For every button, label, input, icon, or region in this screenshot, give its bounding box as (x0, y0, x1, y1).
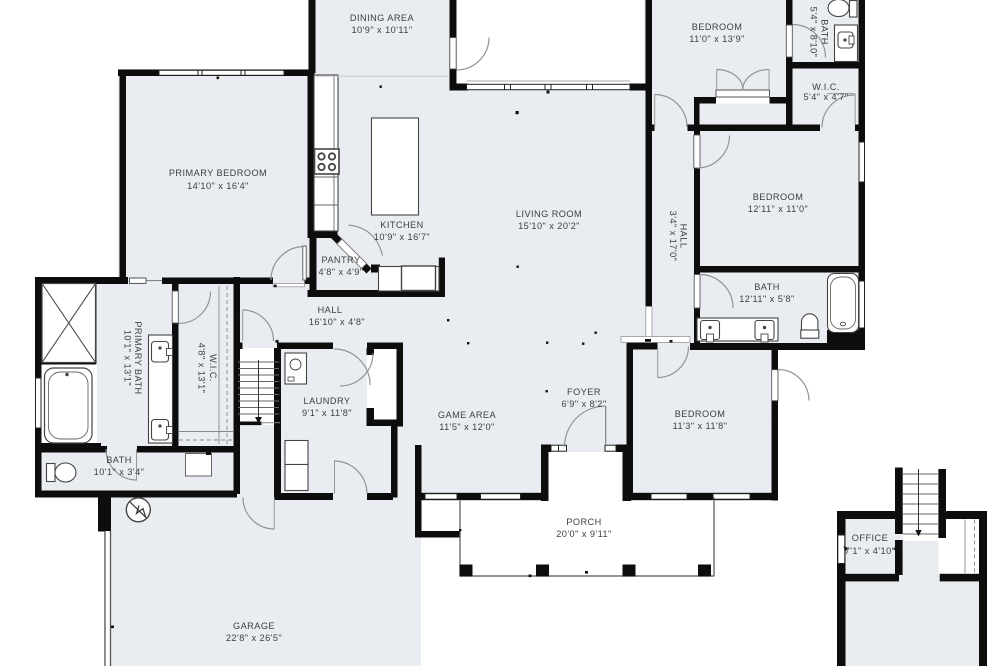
svg-text:6'9" x 8'2": 6'9" x 8'2" (561, 399, 606, 409)
svg-text:16'10" x 4'8": 16'10" x 4'8" (309, 317, 365, 327)
svg-text:12'11" x 11'0": 12'11" x 11'0" (748, 204, 808, 214)
svg-text:15'10" x 20'2": 15'10" x 20'2" (518, 221, 580, 231)
svg-text:PRIMARY BATH: PRIMARY BATH (133, 321, 143, 394)
svg-text:10'9" x 16'7": 10'9" x 16'7" (374, 232, 430, 242)
svg-text:5'4" x 8'10": 5'4" x 8'10" (809, 7, 819, 58)
svg-text:DINING AREA: DINING AREA (350, 13, 415, 23)
svg-text:10'1" x 13'1": 10'1" x 13'1" (123, 330, 133, 386)
svg-text:12'11" x 5'8": 12'11" x 5'8" (739, 294, 795, 304)
svg-text:11'3" x 11'8": 11'3" x 11'8" (673, 421, 728, 431)
svg-text:BEDROOM: BEDROOM (692, 22, 743, 32)
svg-text:GAME AREA: GAME AREA (438, 410, 497, 420)
svg-text:BATH: BATH (106, 455, 132, 465)
svg-text:BATH: BATH (820, 19, 830, 45)
svg-text:PANTRY: PANTRY (321, 255, 360, 265)
svg-text:W.I.C.: W.I.C. (208, 354, 218, 382)
svg-text:5'4" x 4'7": 5'4" x 4'7" (803, 92, 848, 102)
svg-text:LIVING ROOM: LIVING ROOM (516, 209, 582, 219)
svg-text:PRIMARY BEDROOM: PRIMARY BEDROOM (169, 168, 267, 178)
svg-text:10'1" x 3'4": 10'1" x 3'4" (94, 467, 145, 477)
svg-text:4'8" x 4'9": 4'8" x 4'9" (318, 267, 363, 277)
svg-text:10'9" x 10'11": 10'9" x 10'11" (351, 25, 412, 35)
svg-text:W.I.C.: W.I.C. (812, 82, 840, 92)
svg-text:3'4" x 17'0": 3'4" x 17'0" (668, 211, 678, 262)
svg-text:11'0" x 13'9": 11'0" x 13'9" (689, 34, 745, 44)
svg-text:BATH: BATH (754, 282, 780, 292)
svg-text:LAUNDRY: LAUNDRY (304, 396, 351, 406)
svg-text:9'1" x 11'8": 9'1" x 11'8" (302, 408, 352, 418)
svg-text:BEDROOM: BEDROOM (675, 409, 726, 419)
svg-text:7'1" x 4'10": 7'1" x 4'10" (845, 546, 896, 556)
svg-text:4'8" x 13'1": 4'8" x 13'1" (197, 343, 207, 394)
svg-text:HALL: HALL (679, 224, 689, 249)
svg-text:20'0" x 9'11": 20'0" x 9'11" (556, 529, 612, 539)
svg-text:OFFICE: OFFICE (852, 533, 888, 543)
svg-text:22'8" x 26'5": 22'8" x 26'5" (226, 633, 282, 643)
svg-text:11'5" x 12'0": 11'5" x 12'0" (439, 422, 495, 432)
svg-text:GARAGE: GARAGE (233, 621, 275, 631)
svg-text:PORCH: PORCH (566, 517, 601, 527)
svg-text:BEDROOM: BEDROOM (753, 192, 804, 202)
svg-text:14'10" x 16'4": 14'10" x 16'4" (187, 181, 249, 191)
svg-text:HALL: HALL (318, 305, 343, 315)
svg-text:KITCHEN: KITCHEN (380, 220, 423, 230)
svg-text:FOYER: FOYER (567, 387, 601, 397)
